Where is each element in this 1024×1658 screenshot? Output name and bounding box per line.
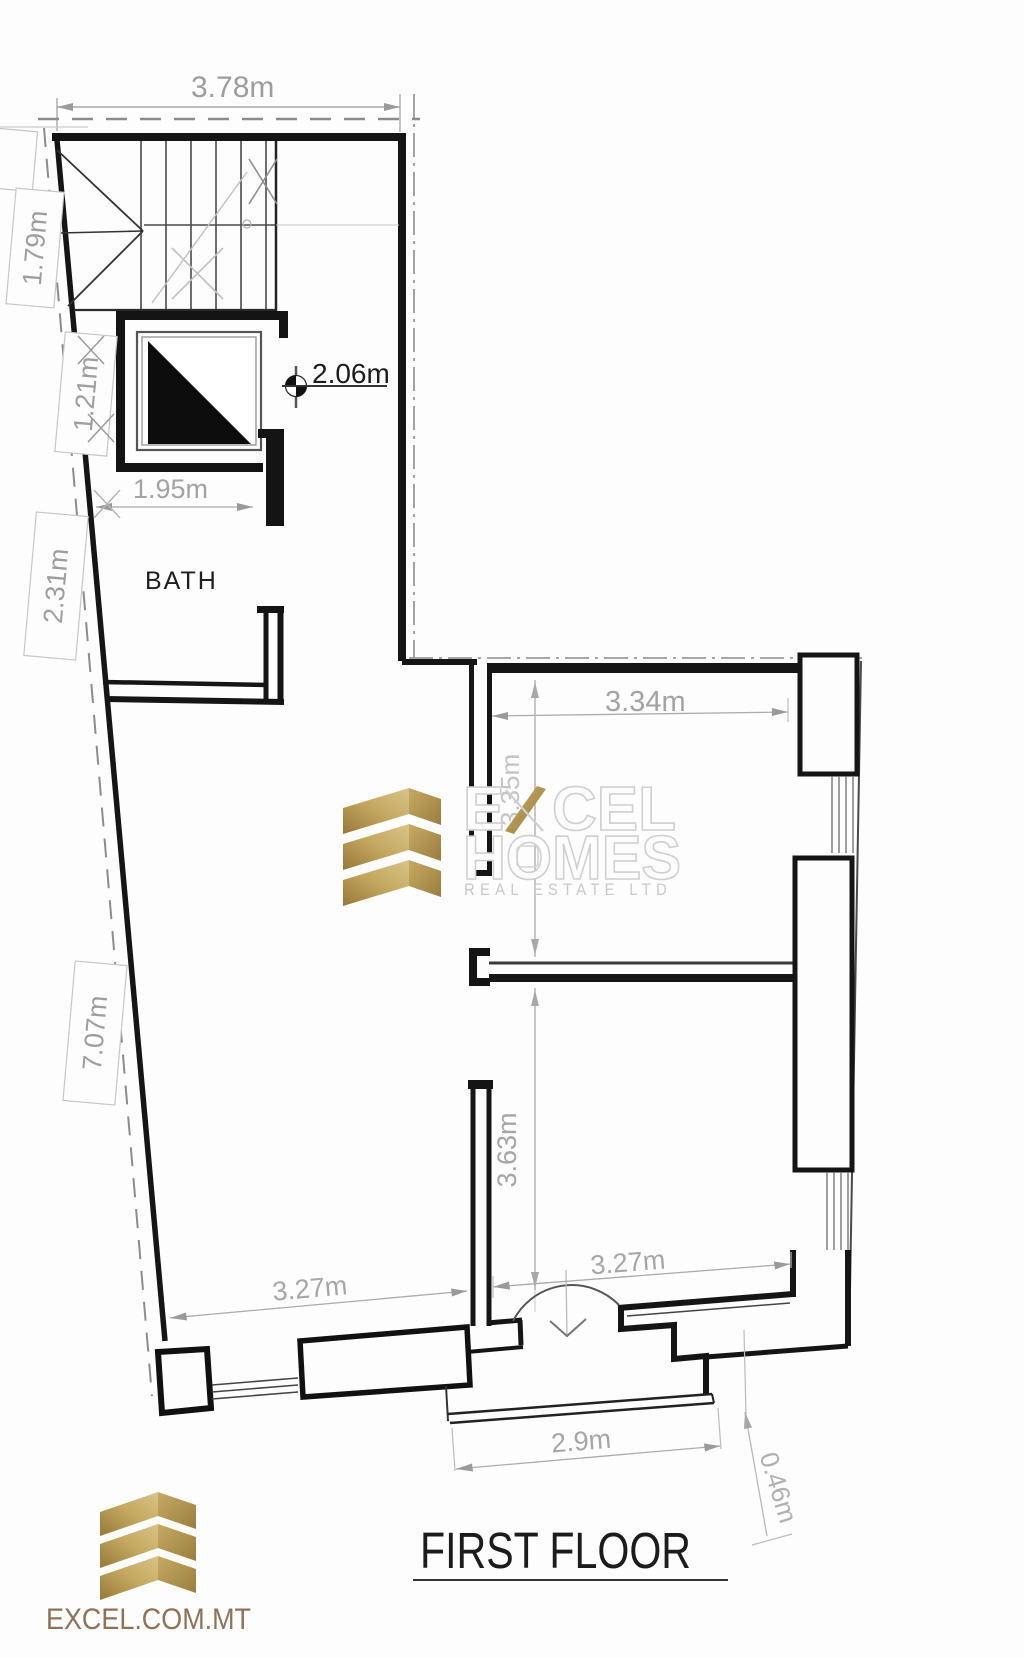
svg-text:3.78m: 3.78m — [191, 71, 274, 104]
svg-text:2.06m: 2.06m — [312, 358, 390, 389]
svg-text:FIRST FLOOR: FIRST FLOOR — [420, 1522, 691, 1579]
svg-text:0.46m: 0.46m — [754, 1448, 804, 1526]
svg-text:REAL ESTATE LTD: REAL ESTATE LTD — [464, 880, 672, 899]
svg-text:3.27m: 3.27m — [271, 1270, 348, 1306]
svg-text:1.95m: 1.95m — [133, 474, 208, 504]
svg-text:2.9m: 2.9m — [550, 1424, 612, 1459]
svg-text:BATH: BATH — [145, 567, 218, 595]
svg-text:EXCEL.COM.MT: EXCEL.COM.MT — [46, 1603, 251, 1636]
svg-text:3.63m: 3.63m — [492, 1112, 522, 1187]
